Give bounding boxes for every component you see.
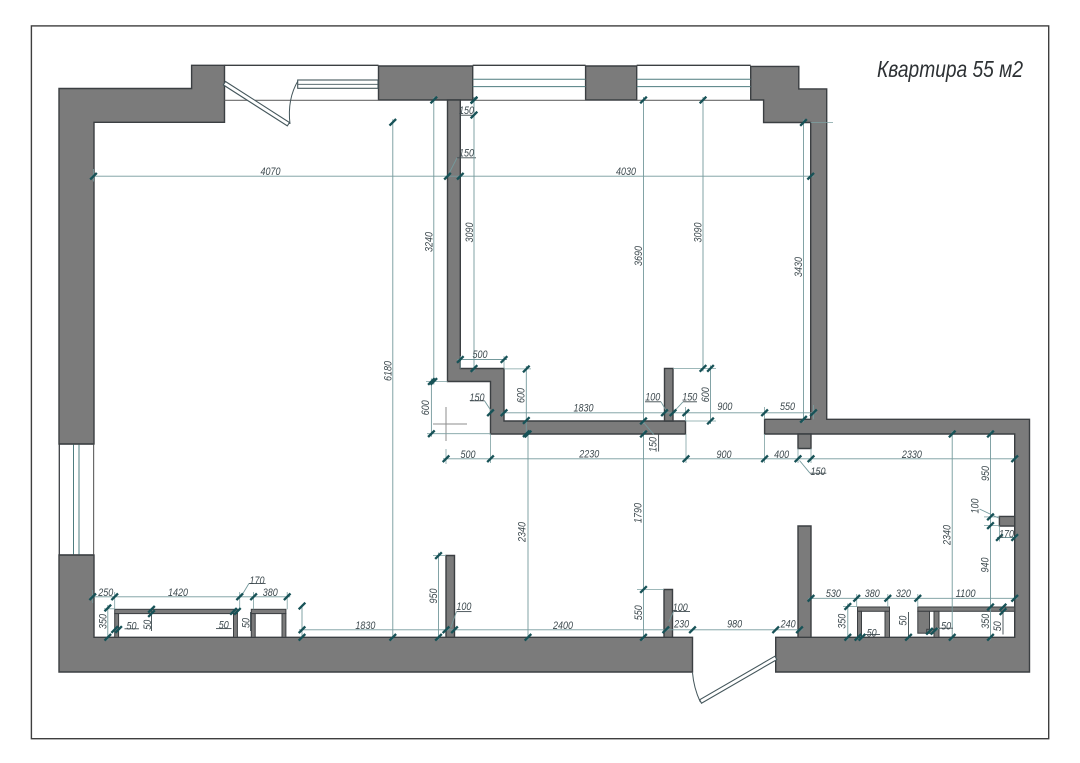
svg-text:600: 600 (700, 387, 712, 402)
svg-text:240: 240 (780, 618, 796, 630)
svg-text:2340: 2340 (942, 525, 954, 546)
svg-text:500: 500 (473, 349, 488, 361)
svg-text:150: 150 (459, 148, 474, 160)
svg-text:3090: 3090 (464, 223, 476, 243)
svg-text:350: 350 (980, 614, 992, 629)
svg-text:1830: 1830 (574, 403, 594, 415)
svg-text:380: 380 (263, 587, 278, 599)
svg-text:950: 950 (980, 466, 992, 481)
svg-text:530: 530 (826, 588, 841, 600)
svg-text:600: 600 (420, 400, 432, 415)
svg-text:550: 550 (633, 605, 645, 620)
svg-text:3430: 3430 (793, 257, 805, 277)
svg-text:500: 500 (461, 449, 476, 461)
svg-text:1420: 1420 (168, 587, 188, 599)
svg-text:100: 100 (456, 601, 471, 613)
svg-text:100: 100 (673, 602, 688, 614)
svg-text:3090: 3090 (693, 223, 705, 243)
svg-text:600: 600 (516, 388, 528, 403)
svg-text:350: 350 (837, 614, 849, 629)
svg-text:2400: 2400 (552, 620, 573, 632)
svg-text:230: 230 (673, 618, 689, 630)
svg-text:2230: 2230 (578, 449, 599, 461)
svg-text:4070: 4070 (261, 166, 281, 178)
svg-text:Квартира 55 м2: Квартира 55 м2 (877, 56, 1023, 82)
svg-text:3690: 3690 (633, 246, 645, 266)
svg-text:900: 900 (717, 449, 732, 461)
svg-text:350: 350 (97, 614, 109, 629)
svg-text:50: 50 (867, 627, 877, 639)
svg-text:2330: 2330 (901, 449, 922, 461)
svg-text:150: 150 (682, 392, 697, 404)
svg-text:320: 320 (896, 588, 911, 600)
svg-text:50: 50 (240, 618, 252, 628)
svg-text:1790: 1790 (632, 503, 644, 523)
svg-text:900: 900 (717, 401, 732, 413)
svg-text:100: 100 (969, 499, 981, 514)
svg-text:1830: 1830 (355, 620, 375, 632)
svg-text:150: 150 (647, 437, 659, 452)
svg-text:50: 50 (127, 621, 137, 633)
svg-text:250: 250 (97, 587, 113, 599)
svg-text:100: 100 (645, 392, 660, 404)
svg-text:50: 50 (897, 616, 909, 626)
svg-text:170: 170 (250, 575, 265, 587)
svg-text:2340: 2340 (517, 522, 529, 543)
svg-text:50: 50 (941, 621, 951, 633)
svg-text:50: 50 (142, 620, 154, 630)
svg-text:380: 380 (865, 588, 880, 600)
svg-text:550: 550 (780, 401, 795, 413)
svg-text:950: 950 (428, 589, 440, 604)
svg-text:150: 150 (811, 466, 826, 478)
svg-text:980: 980 (727, 618, 742, 630)
svg-text:50: 50 (219, 620, 229, 632)
svg-text:6180: 6180 (383, 361, 395, 381)
svg-text:400: 400 (774, 449, 789, 461)
svg-text:170: 170 (999, 528, 1014, 540)
svg-text:3240: 3240 (423, 232, 435, 252)
svg-text:150: 150 (470, 392, 485, 404)
svg-text:150: 150 (459, 105, 474, 117)
svg-text:940: 940 (980, 558, 992, 573)
svg-text:4030: 4030 (616, 166, 636, 178)
svg-text:1100: 1100 (956, 588, 976, 600)
svg-text:50: 50 (992, 621, 1004, 631)
